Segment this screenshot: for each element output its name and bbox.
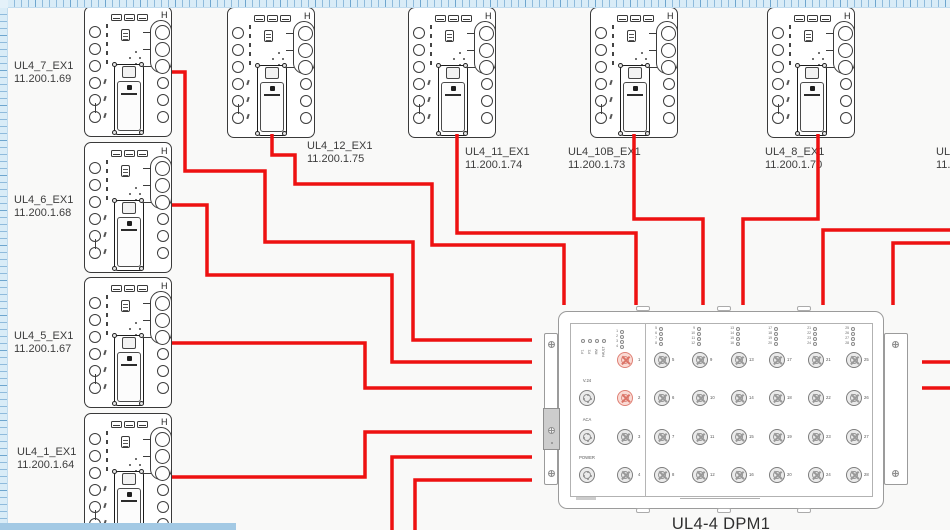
decoration bbox=[103, 215, 106, 220]
decoration bbox=[143, 337, 151, 338]
decoration bbox=[467, 33, 475, 34]
screw-icon bbox=[436, 63, 441, 68]
device-module-UL4_8_EX1[interactable]: H bbox=[767, 7, 855, 138]
decoration bbox=[121, 500, 137, 503]
screw-icon bbox=[548, 470, 555, 477]
port-circle bbox=[840, 112, 852, 124]
tiny-label: 2 bbox=[609, 335, 618, 338]
tiny-label: V.24 bbox=[572, 379, 602, 383]
decoration bbox=[135, 187, 137, 189]
decoration bbox=[103, 503, 106, 508]
connector-icon bbox=[124, 14, 135, 21]
dpm-device[interactable]: P1P2RMFAULT12341234V.24ACAPOWER567856789… bbox=[543, 303, 910, 515]
device-label-clipped[interactable]: UL4_ 11.2 bbox=[936, 146, 950, 172]
decoration bbox=[628, 67, 642, 79]
device-ip: 11.200.1.73 bbox=[568, 159, 641, 172]
port-circle bbox=[661, 26, 676, 41]
decoration bbox=[106, 160, 108, 164]
tiny-label: 28 bbox=[838, 342, 849, 345]
port-connector bbox=[731, 390, 747, 406]
connector-icon bbox=[820, 15, 831, 22]
tiny-label: 20 bbox=[761, 342, 772, 345]
port-circle bbox=[89, 179, 101, 191]
connector-icon bbox=[124, 285, 135, 292]
port-circle bbox=[595, 27, 607, 39]
tiny-label: POWER bbox=[572, 456, 602, 460]
decoration bbox=[601, 104, 602, 114]
decoration bbox=[645, 323, 646, 497]
screw-icon bbox=[436, 131, 441, 136]
decoration bbox=[612, 25, 614, 29]
decoration bbox=[627, 94, 643, 97]
decoration bbox=[609, 80, 612, 85]
decoration bbox=[103, 384, 106, 389]
port-connector bbox=[769, 390, 785, 406]
port-circle bbox=[298, 60, 313, 75]
decoration bbox=[106, 331, 108, 335]
decoration bbox=[249, 52, 251, 56]
tiny-label: 23 bbox=[800, 337, 811, 340]
port-circle bbox=[157, 247, 169, 259]
tiny-label: 28 bbox=[864, 473, 876, 477]
decoration bbox=[143, 439, 151, 440]
port-circle bbox=[89, 467, 101, 479]
connector-icon bbox=[630, 15, 641, 22]
port-circle bbox=[840, 78, 852, 90]
decoration bbox=[649, 33, 657, 34]
decoration bbox=[427, 80, 430, 85]
decoration bbox=[135, 458, 137, 460]
decoration bbox=[419, 104, 420, 114]
device-label[interactable]: UL4_11_EX111.200.1.74 bbox=[465, 146, 530, 172]
port-circle bbox=[157, 230, 169, 242]
tiny-label: 18 bbox=[787, 396, 799, 400]
port-connector bbox=[731, 467, 747, 483]
screw-icon bbox=[822, 131, 827, 136]
wire-down-out-1[interactable] bbox=[392, 457, 532, 530]
screw-icon bbox=[282, 131, 287, 136]
decoration bbox=[121, 93, 137, 96]
screw-icon bbox=[112, 62, 117, 67]
tiny-label: 3 bbox=[609, 340, 618, 343]
screw-icon bbox=[892, 341, 899, 348]
port-circle bbox=[89, 433, 101, 445]
h-mark: H bbox=[304, 12, 311, 21]
tiny-label: 1 bbox=[638, 358, 648, 362]
decoration bbox=[612, 34, 614, 38]
device-label[interactable]: UL4_8_EX111.200.1.70 bbox=[765, 146, 824, 172]
port-circle bbox=[155, 195, 170, 210]
port-connector bbox=[808, 429, 824, 445]
screw-icon bbox=[139, 401, 144, 406]
port-circle bbox=[89, 26, 101, 38]
decoration bbox=[129, 464, 131, 466]
tiny-label: 25 bbox=[838, 327, 849, 330]
decoration bbox=[822, 58, 824, 60]
port-circle bbox=[663, 78, 675, 90]
connector-icon bbox=[280, 15, 291, 22]
connector-icon bbox=[435, 15, 446, 22]
decoration bbox=[95, 103, 96, 113]
connector-icon bbox=[111, 285, 122, 292]
screw-icon bbox=[548, 341, 555, 348]
port-circle bbox=[232, 44, 244, 56]
screw-icon bbox=[112, 469, 117, 474]
connector-icon bbox=[267, 15, 278, 22]
port-circle bbox=[413, 78, 425, 90]
decoration bbox=[430, 34, 432, 38]
screw-icon bbox=[139, 130, 144, 135]
decoration bbox=[143, 456, 151, 457]
port-connector bbox=[692, 352, 708, 368]
connector-icon bbox=[643, 15, 654, 22]
tiny-label: 15 bbox=[749, 435, 761, 439]
screw-icon bbox=[255, 131, 260, 136]
port-circle bbox=[661, 43, 676, 58]
tiny-label: 27 bbox=[838, 337, 849, 340]
tiny-label: 24 bbox=[826, 473, 838, 477]
logo-icon bbox=[451, 86, 456, 91]
decoration bbox=[121, 229, 137, 232]
decoration bbox=[106, 196, 108, 200]
decoration bbox=[106, 458, 108, 462]
port-connector bbox=[654, 390, 670, 406]
tiny-label: 14 bbox=[749, 396, 761, 400]
tiny-label: 6 bbox=[672, 396, 684, 400]
device-label[interactable]: UL4_5_EX111.200.1.67 bbox=[14, 330, 73, 356]
decoration bbox=[129, 57, 131, 59]
tiny-label: ACA bbox=[572, 418, 602, 422]
port-circle bbox=[481, 78, 493, 90]
connector-icon bbox=[264, 30, 273, 42]
port-circle bbox=[481, 95, 493, 107]
decoration bbox=[789, 61, 791, 65]
decoration bbox=[106, 304, 108, 308]
decoration bbox=[106, 322, 108, 326]
decoration bbox=[129, 193, 131, 195]
port-circle bbox=[479, 26, 494, 41]
connector-icon bbox=[111, 150, 122, 157]
logo-icon bbox=[633, 86, 638, 91]
decoration bbox=[106, 60, 108, 64]
wire-UL4_10B-to-DPM1[interactable] bbox=[634, 134, 703, 305]
connector-icon bbox=[121, 300, 130, 312]
port-circle bbox=[595, 44, 607, 56]
decoration bbox=[467, 50, 475, 51]
decoration bbox=[789, 34, 791, 38]
tiny-label: 27 bbox=[864, 435, 876, 439]
connector-icon bbox=[254, 15, 265, 22]
front-panel bbox=[570, 323, 873, 497]
decoration bbox=[139, 57, 141, 59]
tiny-label: 22 bbox=[826, 396, 838, 400]
port-connector bbox=[846, 390, 862, 406]
connector-icon bbox=[445, 30, 454, 42]
aux-connector bbox=[579, 390, 595, 406]
device-module-UL4_12_EX1[interactable]: H bbox=[227, 7, 315, 138]
logo-icon bbox=[127, 85, 132, 90]
wire-UL4_1-to-DPM1[interactable] bbox=[172, 432, 532, 477]
tiny-label: 2 bbox=[638, 396, 648, 400]
wire-down-out-2[interactable] bbox=[415, 480, 532, 530]
port-circle bbox=[89, 162, 101, 174]
screw-icon bbox=[112, 130, 117, 135]
tiny-label: 4 bbox=[638, 473, 648, 477]
device-name: UL4_7_EX1 bbox=[14, 60, 73, 73]
decoration bbox=[103, 96, 106, 101]
device-module-UL4_11_EX1[interactable]: H bbox=[408, 7, 496, 138]
device-name: UL4_1_EX1 bbox=[17, 446, 76, 459]
h-mark: H bbox=[161, 11, 168, 20]
device-ip: 11.200.1.67 bbox=[14, 343, 73, 356]
connector-icon bbox=[794, 15, 805, 22]
device-label[interactable]: UL4_7_EX111.200.1.69 bbox=[14, 60, 73, 86]
decoration bbox=[649, 67, 657, 68]
device-label[interactable]: UL4_10B_EX111.200.1.73 bbox=[568, 146, 641, 172]
decoration bbox=[789, 52, 791, 56]
mount-tab bbox=[797, 306, 811, 311]
decoration bbox=[430, 61, 432, 65]
tiny-label: RM bbox=[595, 345, 598, 359]
decoration bbox=[453, 58, 455, 60]
connector-icon bbox=[617, 15, 628, 22]
tiny-label: 21 bbox=[800, 327, 811, 330]
wire-UL4_5-to-DPM1[interactable] bbox=[172, 343, 532, 388]
device-label[interactable]: UL4_1_EX111.200.1.64 bbox=[17, 446, 76, 472]
port-circle bbox=[413, 44, 425, 56]
h-mark: H bbox=[161, 147, 168, 156]
tiny-label: 4 bbox=[609, 345, 618, 348]
decoration bbox=[143, 168, 151, 169]
port-circle bbox=[300, 112, 312, 124]
wire-right-in-2[interactable] bbox=[893, 243, 950, 305]
tiny-label: 9 bbox=[710, 358, 722, 362]
port-circle bbox=[89, 213, 101, 225]
mount-tab bbox=[636, 508, 650, 513]
port-circle bbox=[481, 112, 493, 124]
connector-icon bbox=[137, 285, 148, 292]
decoration bbox=[445, 94, 461, 97]
device-label[interactable]: UL4_6_EX111.200.1.68 bbox=[14, 194, 73, 220]
port-connector bbox=[769, 429, 785, 445]
tiny-label: 25 bbox=[864, 358, 876, 362]
decoration bbox=[143, 473, 151, 474]
port-connector bbox=[617, 467, 633, 483]
connector-icon bbox=[121, 436, 130, 448]
tiny-label: 24 bbox=[800, 342, 811, 345]
decoration bbox=[778, 104, 779, 114]
decoration bbox=[106, 42, 108, 46]
port-circle bbox=[89, 60, 101, 72]
port-circle bbox=[89, 331, 101, 343]
device-label[interactable]: UL4_12_EX111.200.1.75 bbox=[307, 140, 372, 166]
decoration bbox=[826, 67, 834, 68]
decoration bbox=[103, 113, 106, 118]
decoration bbox=[129, 328, 131, 330]
decoration bbox=[427, 97, 430, 102]
decoration bbox=[459, 52, 461, 54]
port-circle bbox=[157, 484, 169, 496]
decoration bbox=[612, 52, 614, 56]
decoration bbox=[106, 449, 108, 453]
port-circle bbox=[840, 95, 852, 107]
port-connector bbox=[769, 352, 785, 368]
tiny-label: 18 bbox=[761, 332, 772, 335]
screw-icon bbox=[112, 266, 117, 271]
port-connector bbox=[654, 429, 670, 445]
port-circle bbox=[772, 61, 784, 73]
port-circle bbox=[479, 60, 494, 75]
tiny-label: 7 bbox=[672, 435, 684, 439]
logo-icon bbox=[127, 492, 132, 497]
tiny-label: 11 bbox=[710, 435, 722, 439]
connector-icon bbox=[804, 30, 813, 42]
decoration bbox=[143, 66, 151, 67]
decoration bbox=[645, 58, 647, 60]
decoration bbox=[106, 51, 108, 55]
port-circle bbox=[157, 501, 169, 513]
connector-icon bbox=[627, 30, 636, 42]
device-module-UL4_5_EX1[interactable]: H bbox=[84, 277, 172, 408]
port-circle bbox=[155, 449, 170, 464]
wire-UL4_6-to-DPM1[interactable] bbox=[172, 205, 532, 362]
port-circle bbox=[838, 60, 853, 75]
tiny-label: 10 bbox=[710, 396, 722, 400]
port-circle bbox=[157, 213, 169, 225]
device-ip: 11.200.1.64 bbox=[17, 459, 76, 472]
decoration bbox=[106, 24, 108, 28]
port-circle bbox=[155, 59, 170, 74]
tiny-label: 23 bbox=[826, 435, 838, 439]
port-circle bbox=[157, 348, 169, 360]
screw-icon bbox=[112, 198, 117, 203]
decoration bbox=[612, 61, 614, 65]
tiny-label: 13 bbox=[749, 358, 761, 362]
decoration bbox=[103, 367, 106, 372]
decoration bbox=[106, 467, 108, 471]
device-ip: 11.200.1.75 bbox=[307, 153, 372, 166]
screw-icon bbox=[618, 63, 623, 68]
decoration bbox=[122, 66, 136, 78]
logo-icon bbox=[127, 356, 132, 361]
port-circle bbox=[157, 382, 169, 394]
port-circle bbox=[89, 43, 101, 55]
port-connector bbox=[846, 352, 862, 368]
decoration bbox=[103, 79, 106, 84]
device-module-UL4_1_EX1[interactable]: H bbox=[84, 413, 172, 530]
port-connector bbox=[617, 352, 633, 368]
decoration bbox=[143, 320, 151, 321]
decoration bbox=[122, 202, 136, 214]
tiny-label: 8 bbox=[672, 473, 684, 477]
mount-tab bbox=[717, 508, 731, 513]
port-connector bbox=[654, 352, 670, 368]
dpm-caption[interactable]: UL4-4 DPM1 bbox=[558, 515, 884, 530]
decoration bbox=[103, 232, 106, 237]
device-name: UL4_6_EX1 bbox=[14, 194, 73, 207]
tiny-label: 12 bbox=[710, 473, 722, 477]
decoration bbox=[786, 80, 789, 85]
port-circle bbox=[155, 330, 170, 345]
port-connector bbox=[617, 429, 633, 445]
port-circle bbox=[157, 365, 169, 377]
device-name: UL4_12_EX1 bbox=[307, 140, 372, 153]
screw-icon bbox=[795, 131, 800, 136]
port-circle bbox=[155, 178, 170, 193]
device-name: UL4_8_EX1 bbox=[765, 146, 824, 159]
connector-icon bbox=[137, 14, 148, 21]
decoration bbox=[249, 43, 251, 47]
decoration bbox=[249, 61, 251, 65]
device-ip: 11.200.1.74 bbox=[465, 159, 530, 172]
connector-icon bbox=[137, 421, 148, 428]
connector-icon bbox=[111, 14, 122, 21]
port-circle bbox=[157, 111, 169, 123]
logo-icon bbox=[127, 221, 132, 226]
tiny-label: 19 bbox=[761, 337, 772, 340]
decoration bbox=[818, 52, 820, 54]
decoration bbox=[641, 52, 643, 54]
device-ip: 11.2 bbox=[936, 159, 950, 172]
tiny-label: 12 bbox=[684, 342, 695, 345]
device-module-UL4_7_EX1[interactable]: H bbox=[84, 6, 172, 137]
port-circle bbox=[89, 450, 101, 462]
connector-icon bbox=[111, 421, 122, 428]
decoration bbox=[826, 33, 834, 34]
port-connector bbox=[731, 429, 747, 445]
decoration bbox=[106, 440, 108, 444]
port-circle bbox=[89, 196, 101, 208]
connector-icon bbox=[121, 29, 130, 41]
port-circle bbox=[155, 42, 170, 57]
aux-connector bbox=[579, 467, 595, 483]
decoration bbox=[122, 473, 136, 485]
mount-tab bbox=[717, 306, 731, 311]
device-ip: 11.200.1.70 bbox=[765, 159, 824, 172]
device-module-UL4_6_EX1[interactable]: H bbox=[84, 142, 172, 273]
port-circle bbox=[661, 60, 676, 75]
port-connector bbox=[808, 352, 824, 368]
tiny-label: 21 bbox=[826, 358, 838, 362]
port-circle bbox=[155, 161, 170, 176]
decoration bbox=[264, 94, 280, 97]
port-connector bbox=[692, 429, 708, 445]
decoration bbox=[612, 43, 614, 47]
port-circle bbox=[89, 348, 101, 360]
diagram-canvas: HUL4_7_EX111.200.1.69HUL4_6_EX111.200.1.… bbox=[0, 0, 950, 530]
wire-right-in-1[interactable] bbox=[823, 230, 950, 305]
decoration bbox=[139, 328, 141, 330]
logo-icon bbox=[810, 86, 815, 91]
tiny-label: 26 bbox=[838, 332, 849, 335]
port-circle bbox=[89, 297, 101, 309]
decoration bbox=[135, 322, 137, 324]
ruler-horizontal bbox=[0, 0, 950, 8]
decoration bbox=[278, 52, 280, 54]
decoration bbox=[635, 58, 637, 60]
decoration bbox=[106, 431, 108, 435]
h-mark: H bbox=[161, 418, 168, 427]
decoration bbox=[246, 97, 249, 102]
decoration bbox=[106, 178, 108, 182]
h-mark: H bbox=[667, 12, 674, 21]
device-module-UL4_10B_EX1[interactable]: H bbox=[590, 7, 678, 138]
h-mark: H bbox=[161, 282, 168, 291]
decoration bbox=[551, 442, 553, 444]
horizontal-scrollbar-thumb[interactable] bbox=[0, 523, 236, 530]
port-connector bbox=[769, 467, 785, 483]
port-circle bbox=[155, 25, 170, 40]
